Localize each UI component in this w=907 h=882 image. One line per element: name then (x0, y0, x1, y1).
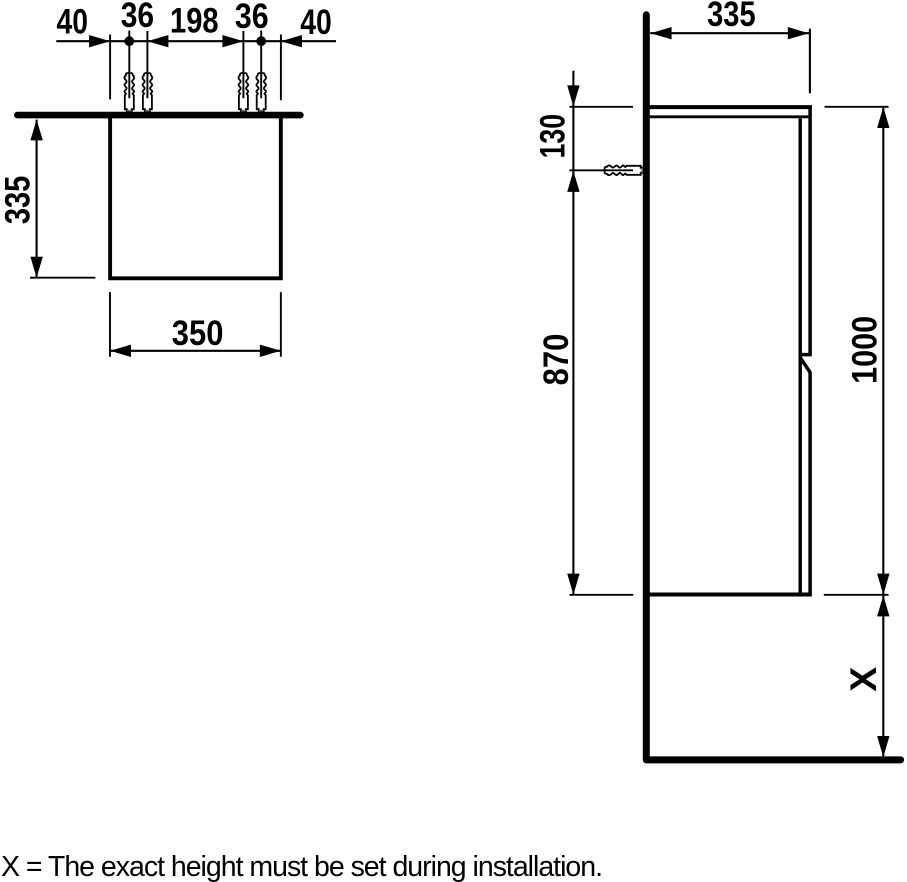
svg-text:40: 40 (300, 2, 332, 42)
svg-text:X: X (843, 666, 884, 691)
svg-text:X = The exact height must be s: X = The exact height must be set during … (1, 851, 603, 882)
svg-text:40: 40 (57, 2, 89, 42)
svg-text:335: 335 (0, 176, 37, 225)
svg-text:350: 350 (172, 313, 224, 353)
svg-text:198: 198 (170, 0, 219, 40)
svg-text:36: 36 (121, 0, 154, 35)
svg-text:1000: 1000 (844, 316, 884, 384)
svg-text:335: 335 (707, 0, 756, 34)
svg-text:870: 870 (536, 334, 576, 386)
svg-text:36: 36 (235, 0, 269, 36)
svg-text:130: 130 (533, 114, 573, 158)
